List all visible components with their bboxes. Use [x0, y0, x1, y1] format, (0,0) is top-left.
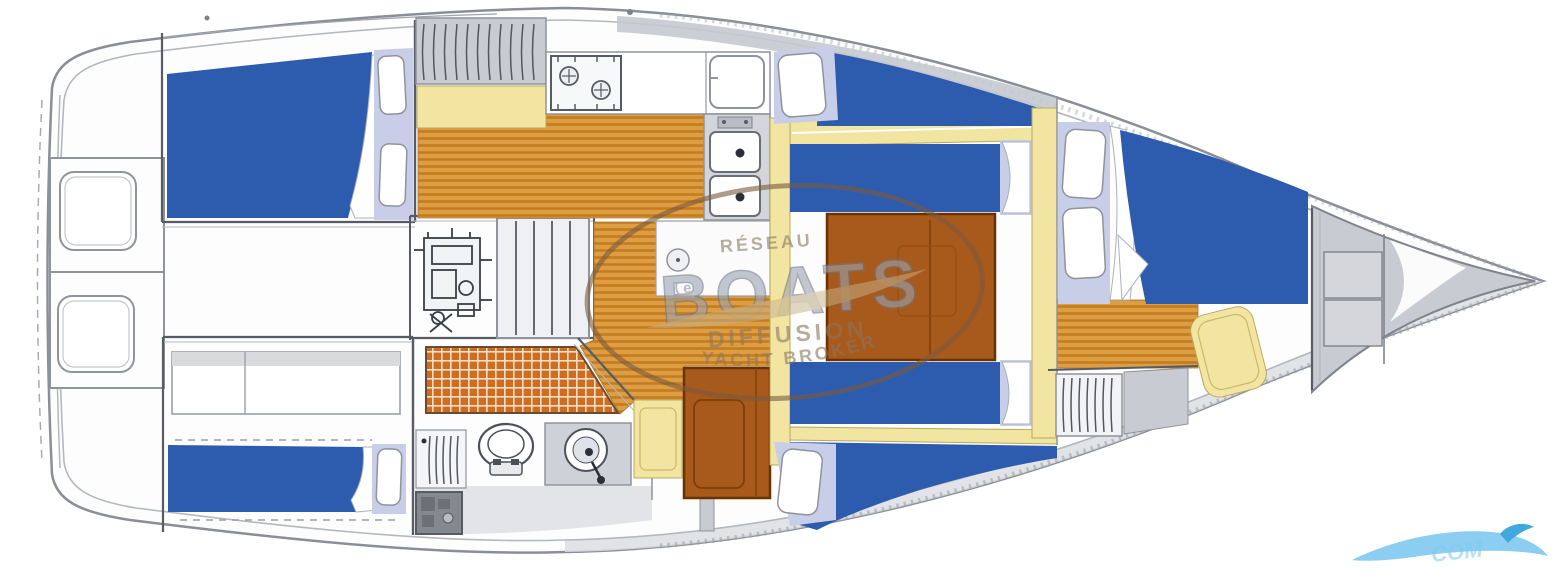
boat-plan-drawing: RÉSEAU e BOATS DIFFUSION YACHT BROKER CO… [0, 0, 1560, 580]
sole-post [700, 497, 714, 531]
forward-pillow-2 [1062, 207, 1106, 279]
aft-port-berth-mattress [167, 52, 372, 218]
bow-locker-area [1312, 206, 1535, 392]
stern-lockers [50, 158, 164, 388]
aft-stbd-pillow [376, 449, 402, 506]
forward-cabin-sole [1048, 300, 1198, 368]
saloon-fwd-shelf [1032, 108, 1057, 438]
chart-table [684, 368, 770, 498]
lower-backrest-pillow [777, 448, 823, 516]
fridge-icon [710, 56, 764, 108]
forward-pillow-1 [1062, 129, 1107, 200]
yacht-layout-plan: RÉSEAU e BOATS DIFFUSION YACHT BROKER CO… [0, 0, 1560, 580]
corner-watermark: COM [1352, 524, 1548, 567]
head-sink-unit [416, 492, 462, 534]
forward-louver-locker [1056, 368, 1188, 436]
nav-seat [634, 400, 682, 478]
stern-hatch-lower [58, 296, 134, 372]
aft-port-pillow-2 [379, 144, 407, 207]
forward-locker-wedge [1124, 368, 1188, 434]
aft-stbd-berth-mattress [168, 445, 364, 512]
bow-shelf-upper [1324, 252, 1382, 298]
bow-shelf-lower [1324, 300, 1382, 346]
galley-counter-yellow [417, 86, 546, 128]
head-louver-door [416, 430, 466, 488]
aft-stbd-counter-back [172, 352, 400, 366]
mast-fitting-dot [627, 9, 633, 15]
bow-locker [1312, 206, 1535, 392]
upper-settee-cushion [790, 144, 1004, 212]
companionway [497, 218, 594, 340]
stern-hatch-upper [60, 172, 136, 250]
stanchion-dot [205, 16, 210, 21]
stove-icon [551, 56, 621, 110]
double-sink-icon [704, 114, 770, 220]
galley-louvered-locker [416, 18, 546, 84]
upper-backrest-pillow [777, 52, 826, 118]
transom-dashed-line [38, 100, 43, 462]
washbasin-icon [545, 423, 631, 485]
forward-cabin [1048, 96, 1308, 445]
companionway-steps-icon [497, 218, 589, 338]
aft-port-pillow-1 [378, 55, 407, 114]
